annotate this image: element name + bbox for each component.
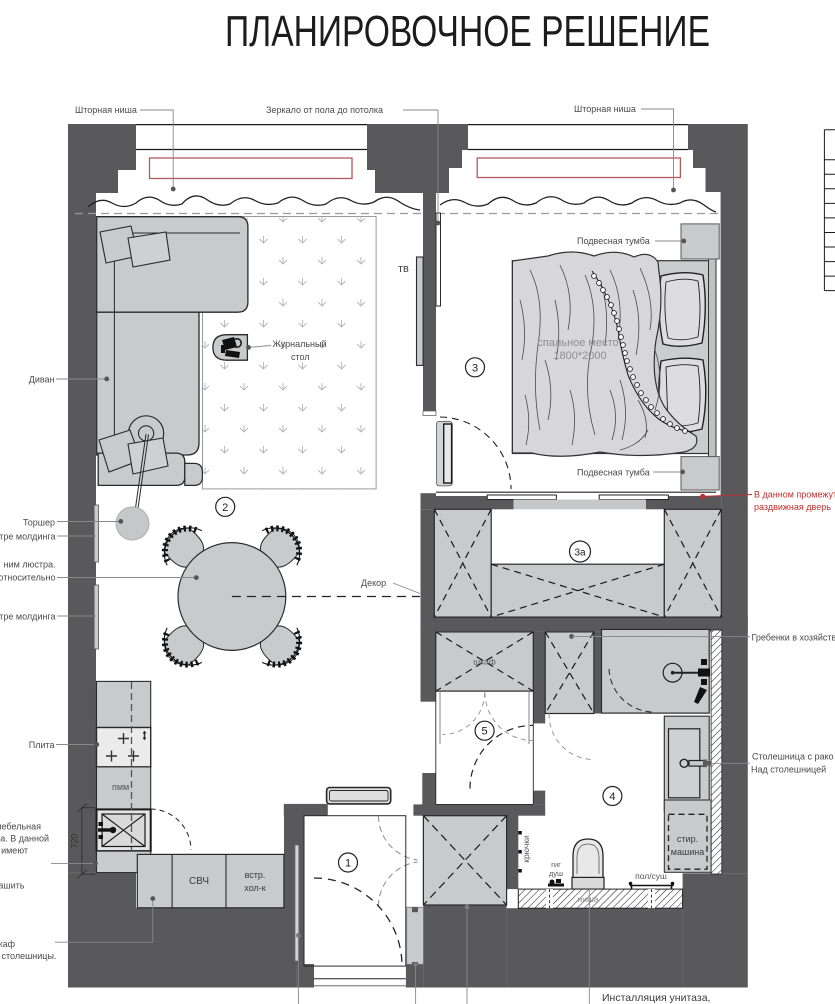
svg-text:Подвесная тумба: Подвесная тумба	[577, 468, 650, 478]
svg-text:мебельная: мебельная	[0, 822, 41, 832]
svg-text:СВЧ: СВЧ	[189, 876, 209, 887]
svg-text:крючки: крючки	[521, 835, 531, 863]
svg-text:Торшер: Торшер	[23, 518, 55, 528]
svg-text:пмм: пмм	[112, 782, 129, 792]
svg-text:шкаф: шкаф	[0, 939, 16, 949]
svg-text:столешницы.: столешницы.	[2, 951, 57, 961]
svg-text:спальное место: спальное место	[537, 337, 618, 349]
svg-text:3: 3	[472, 362, 478, 374]
svg-text:Гребенки в хозяйств: Гребенки в хозяйств	[752, 633, 835, 643]
svg-text:Инсталляция унитаза,: Инсталляция унитаза,	[602, 992, 710, 1004]
svg-text:шкаф: шкаф	[473, 657, 495, 667]
svg-text:3а: 3а	[574, 548, 586, 559]
svg-text:Декор: Декор	[361, 578, 386, 588]
svg-text:Шторная ниша: Шторная ниша	[75, 105, 137, 115]
svg-text:4: 4	[609, 791, 615, 803]
svg-text:встр.: встр.	[245, 870, 266, 880]
svg-text:раздвижная дверь: раздвижная дверь	[754, 502, 831, 512]
svg-text:720: 720	[70, 833, 80, 848]
svg-text:пол/суш: пол/суш	[635, 871, 667, 881]
svg-text:центре молдинга: центре молдинга	[0, 532, 56, 542]
svg-text:2: 2	[222, 502, 228, 514]
svg-text:стир.: стир.	[677, 834, 698, 844]
svg-text:Шторная ниша: Шторная ниша	[574, 104, 636, 114]
svg-text:В данном промежутке: В данном промежутке	[754, 490, 835, 500]
svg-text:относительно: относительно	[0, 573, 56, 583]
svg-text:имеют: имеют	[1, 846, 28, 856]
svg-text:Столешница с рако: Столешница с рако	[752, 752, 834, 762]
svg-text:Над столешницей: Над столешницей	[751, 765, 826, 775]
svg-text:гиг: гиг	[551, 860, 561, 869]
svg-text:центре молдинга: центре молдинга	[0, 612, 56, 622]
svg-text:Плита: Плита	[29, 740, 55, 750]
svg-text:Диван: Диван	[29, 375, 55, 385]
svg-text:хол-к: хол-к	[244, 883, 265, 893]
svg-text:ниша: ниша	[578, 894, 599, 904]
svg-text:ним люстра.: ним люстра.	[4, 560, 56, 570]
svg-text:1: 1	[345, 858, 351, 870]
svg-text:машина: машина	[671, 847, 704, 857]
svg-text:стол: стол	[291, 352, 310, 362]
svg-text:а. В данной: а. В данной	[0, 834, 49, 844]
svg-text:тв: тв	[398, 263, 409, 275]
svg-text:1800*2000: 1800*2000	[553, 350, 606, 362]
svg-text:душ: душ	[549, 869, 563, 878]
svg-text:Подвесная тумба: Подвесная тумба	[577, 236, 650, 246]
svg-text:ПЛАНИРОВОЧНОЕ РЕШЕНИЕ: ПЛАНИРОВОЧНОЕ РЕШЕНИЕ	[225, 7, 710, 56]
svg-text:Журнальный: Журнальный	[273, 339, 327, 349]
svg-text:5: 5	[482, 726, 488, 738]
svg-text:зашить: зашить	[0, 881, 25, 891]
svg-text:Зеркало от пола до потолка: Зеркало от пола до потолка	[266, 105, 383, 115]
